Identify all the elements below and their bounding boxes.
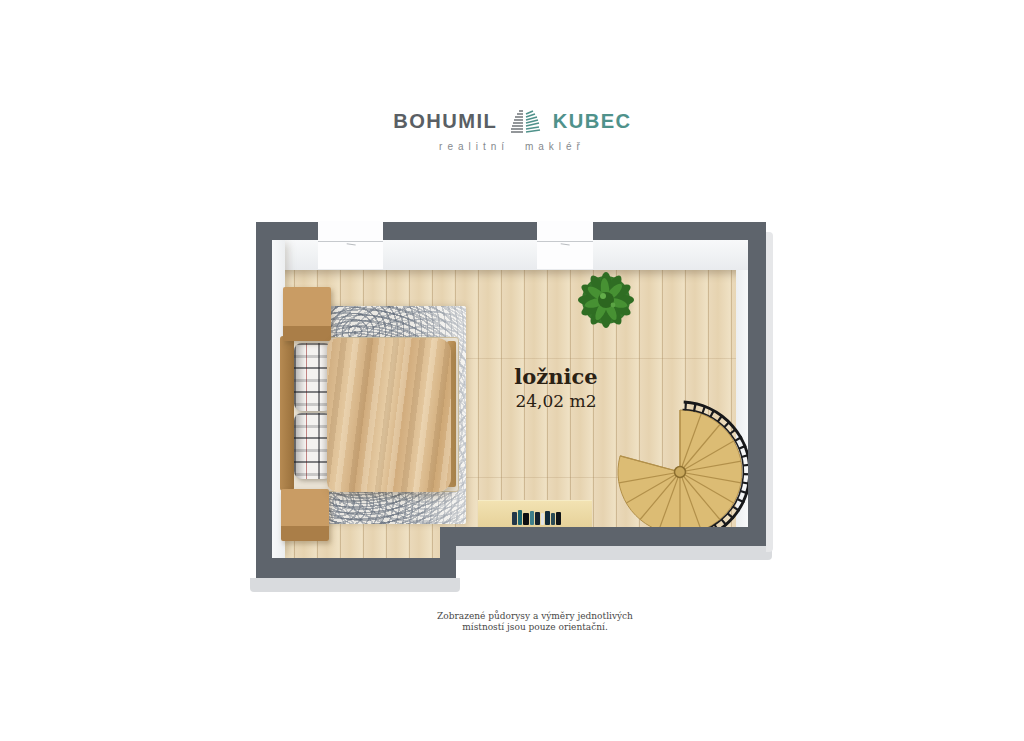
nightstand — [281, 489, 329, 541]
window-center-mark — [561, 238, 571, 245]
wall-bottom-right — [440, 527, 766, 546]
brand-building-icon — [508, 106, 542, 136]
brand-name-primary: BOHUMIL — [393, 109, 497, 133]
brand-name-secondary: KUBEC — [553, 109, 632, 133]
potted-plant — [573, 267, 639, 333]
disclaimer-line-1: Zobrazené půdorysy a výměry jednotlivých — [385, 611, 685, 622]
wall-right — [748, 222, 766, 546]
window — [318, 221, 383, 269]
bed-blanket — [327, 338, 451, 492]
disclaimer-line-2: místností jsou pouze orientační. — [385, 622, 685, 633]
room-area: 24,02 m2 — [466, 391, 646, 411]
room-name: ložnice — [466, 364, 646, 389]
disclaimer: Zobrazené půdorysy a výměry jednotlivých… — [385, 611, 685, 633]
window-center-mark — [346, 238, 356, 245]
bed-headboard — [280, 336, 294, 491]
brand-tagline: realitní makléř — [439, 141, 585, 152]
wall-outer-right — [766, 232, 773, 552]
wall-left — [256, 222, 272, 578]
wall-outer-bottom-left — [250, 578, 460, 592]
brand-logo: BOHUMIL KUBEC realitní makléř — [0, 106, 1024, 152]
books — [512, 509, 561, 525]
floorplan-page: BOHUMIL KUBEC realitní makléř — [0, 0, 1024, 741]
wall-top-segment — [593, 222, 766, 240]
window — [537, 221, 593, 269]
brand-row: BOHUMIL KUBEC — [391, 106, 634, 136]
nightstand — [283, 287, 331, 341]
wall-bottom-left — [256, 558, 456, 578]
wall-outer-bottom-right — [446, 546, 772, 560]
spiral-staircase — [604, 396, 756, 548]
room-label: ložnice 24,02 m2 — [466, 364, 646, 411]
wall-top-segment — [383, 222, 537, 240]
